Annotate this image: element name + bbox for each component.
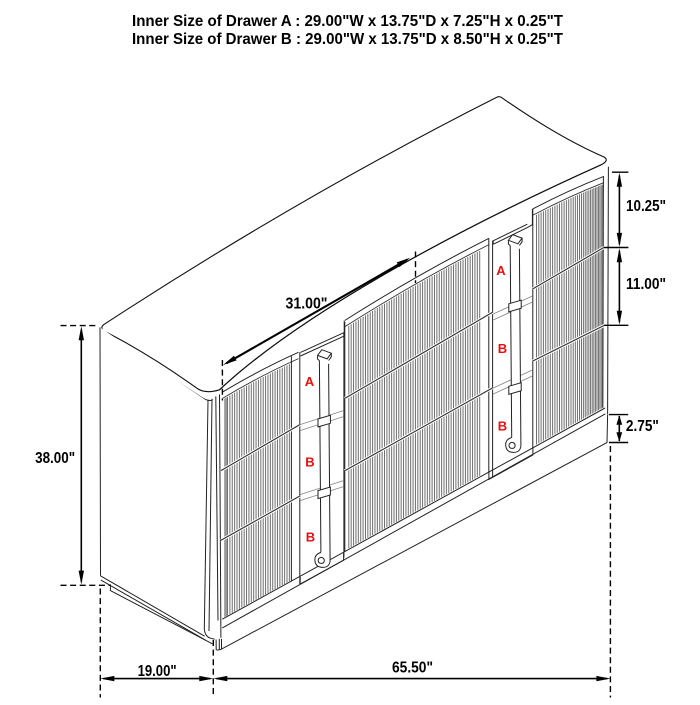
svg-text:10.25": 10.25" [626, 198, 666, 215]
svg-text:11.00": 11.00" [626, 276, 666, 293]
svg-text:A: A [305, 374, 315, 389]
svg-text:B: B [498, 419, 507, 434]
svg-text:38.00": 38.00" [35, 450, 75, 467]
svg-text:2.75": 2.75" [626, 418, 659, 435]
svg-text:B: B [305, 454, 314, 469]
svg-text:65.50": 65.50" [392, 659, 433, 676]
svg-text:Inner Size of Drawer A : 29.00: Inner Size of Drawer A : 29.00"W x 13.75… [132, 13, 563, 30]
svg-text:31.00": 31.00" [286, 295, 328, 312]
svg-text:B: B [306, 530, 315, 545]
svg-text:Inner Size of Drawer B : 29.00: Inner Size of Drawer B : 29.00"W x 13.75… [132, 31, 563, 48]
svg-text:B: B [498, 341, 507, 356]
svg-text:A: A [496, 263, 506, 278]
svg-text:19.00": 19.00" [138, 663, 177, 680]
